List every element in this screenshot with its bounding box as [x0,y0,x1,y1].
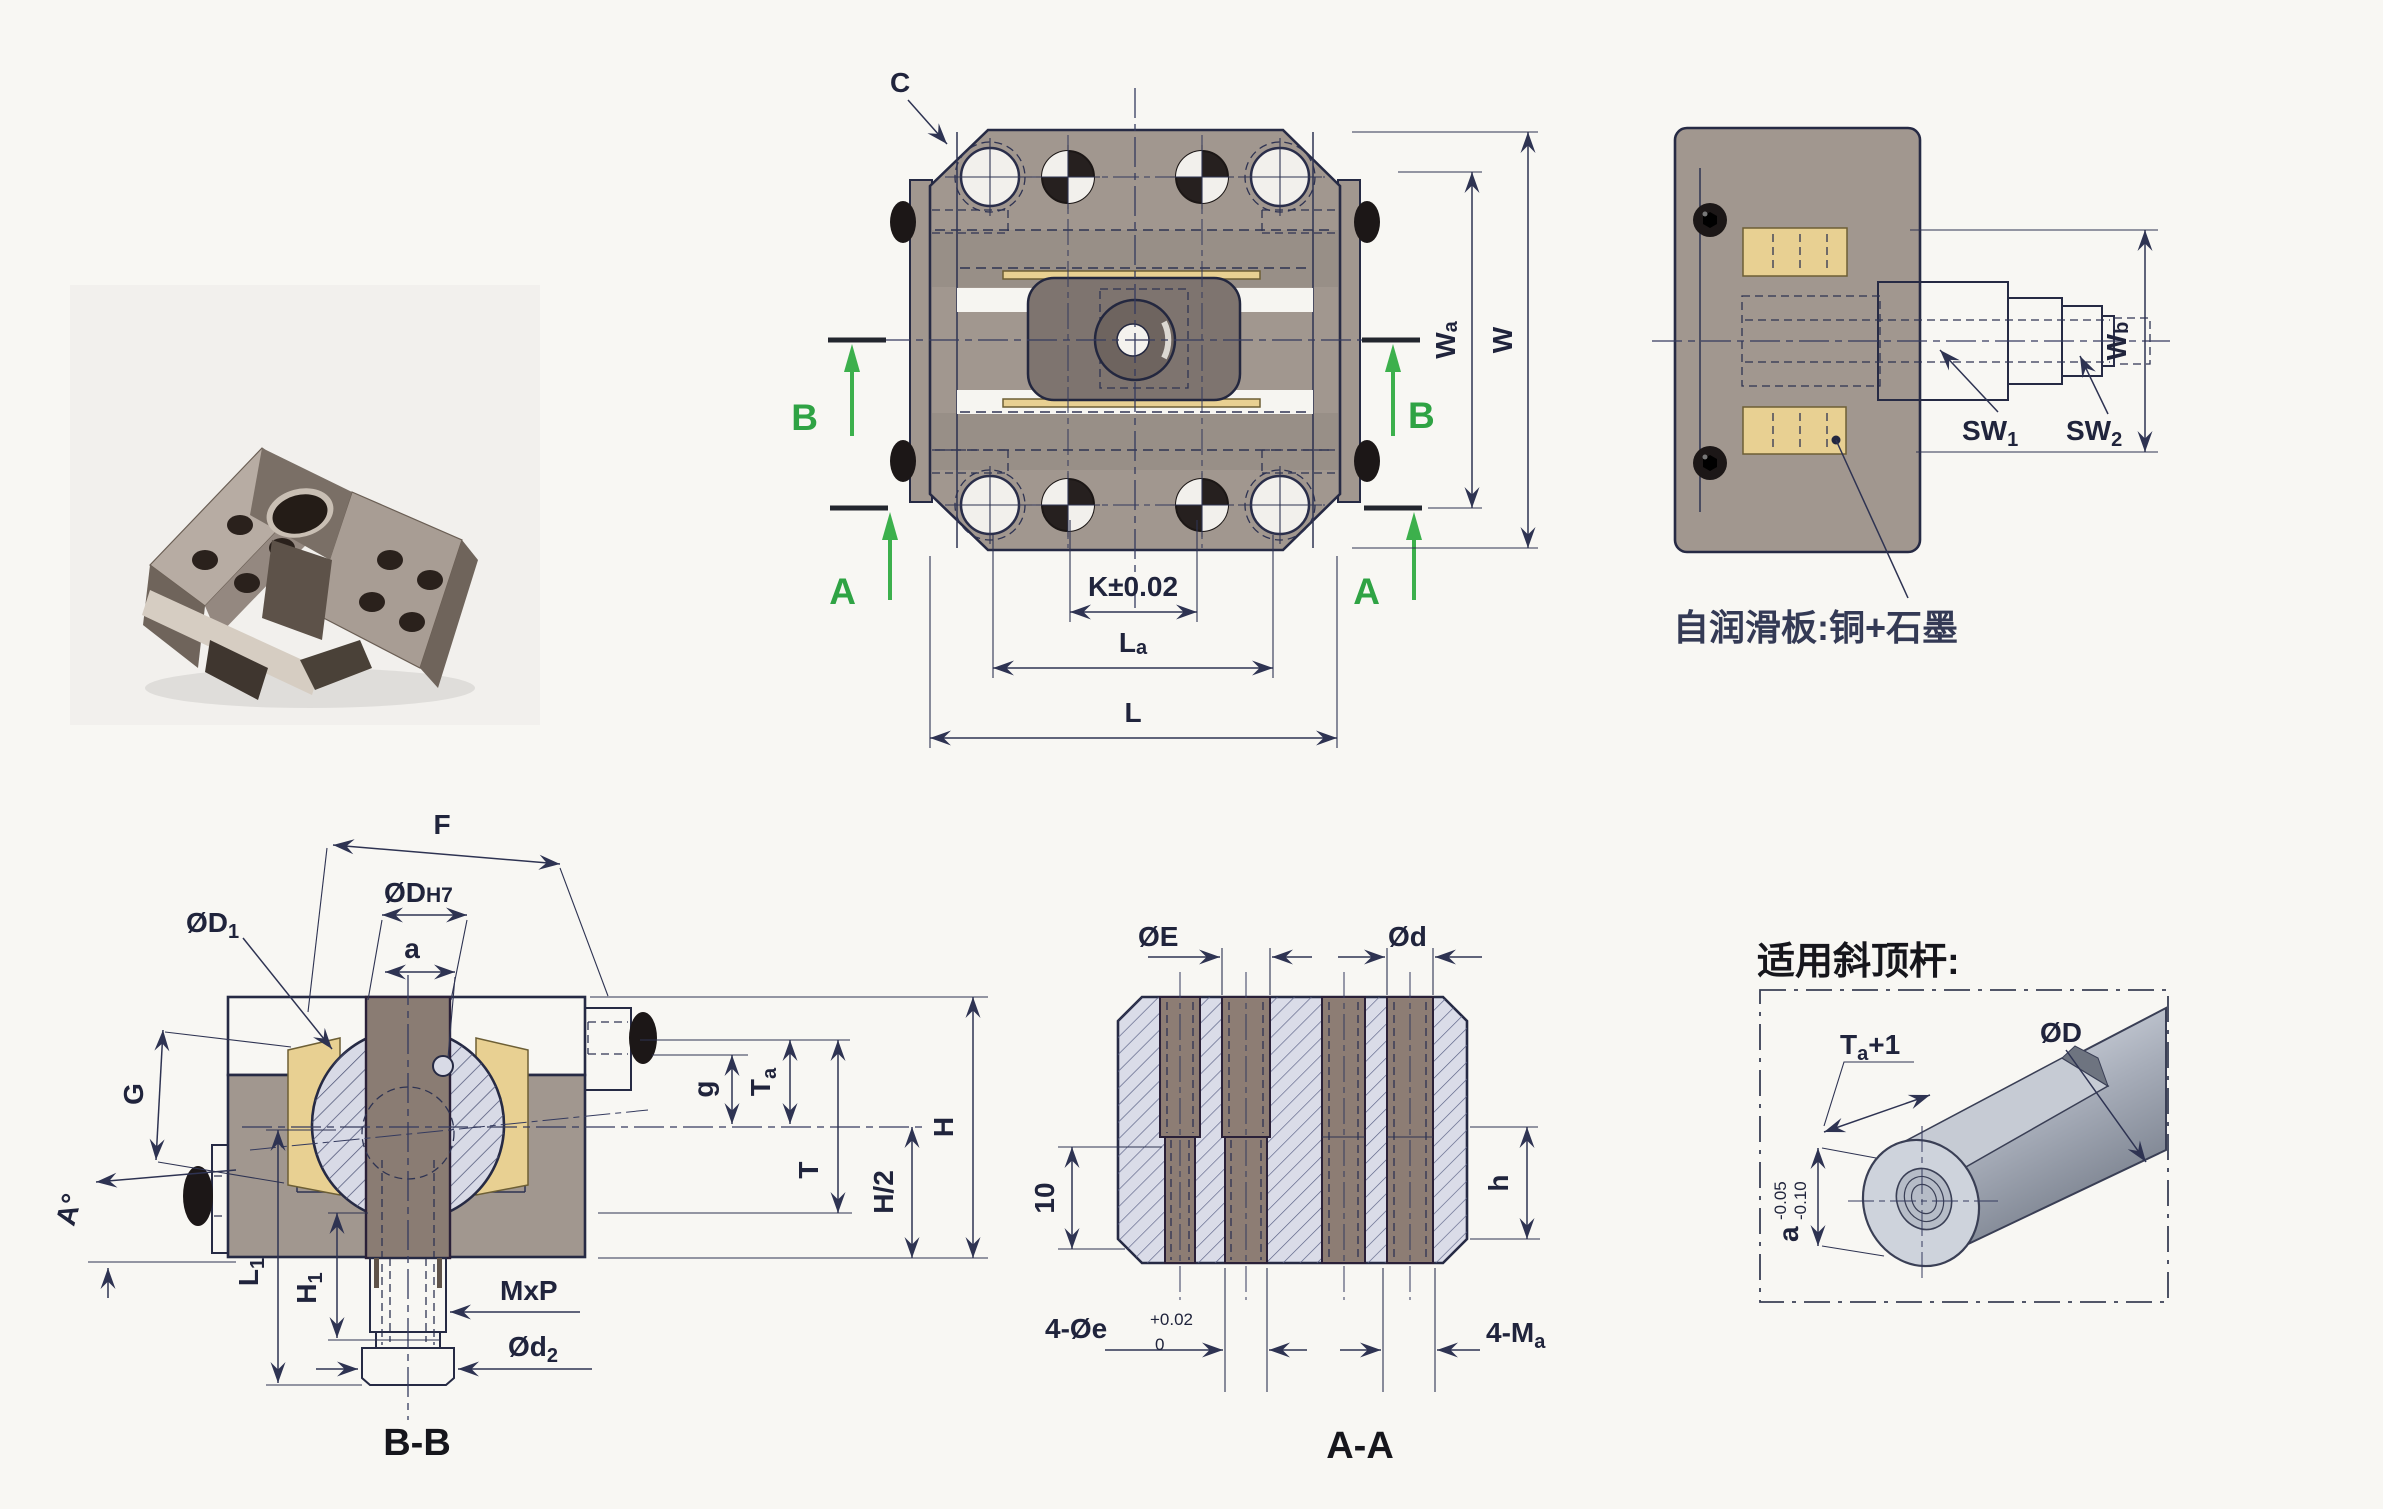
dim-ta: Ta [745,1040,790,1124]
dim-d1: ØD1 [186,907,332,1049]
dim-4e-tol-lower: 0 [1155,1335,1164,1354]
sw2-leader [2080,356,2108,414]
dim-la: La [993,535,1273,678]
housing-body [1675,128,1920,552]
section-a-label: A [829,571,856,612]
svg-text:-0.05: -0.05 [1771,1181,1790,1220]
dim-k-label: K±0.02 [1088,571,1178,602]
rod-view-title: 适用斜顶杆: [1757,941,1960,983]
dim-l-label: L [1124,697,1141,728]
dim-d-small-label: Ød [1388,921,1427,952]
svg-text:-0.10: -0.10 [1791,1181,1810,1220]
sw1-leader [1940,350,1998,412]
dim-ta1: Ta+1 [1824,1029,1930,1132]
drawing-sheet: C B B A A K±0.02 La L Wa [0,0,2383,1509]
dim-h1-label: H1 [291,1272,327,1303]
drawing-canvas: C B B A A K±0.02 La L Wa [0,0,2383,1509]
dim-e-label: ØE [1138,921,1178,952]
section-arrow-b-right: B [1362,340,1435,436]
dim-h-small-label: h [1483,1174,1514,1191]
dim-d2-label: Ød2 [508,1331,558,1367]
side-screw [890,440,916,482]
top-view: C B B A A K±0.02 La L Wa [791,67,1538,748]
dim-wa-label: Wa [1430,320,1462,358]
dim-mxp: MxP [450,1275,580,1312]
rod-view: 适用斜顶杆: Ta+1 ØD a -0.05 -0.10 [1757,941,2168,1302]
dim-d1-label: ØD1 [186,907,239,943]
svg-text:a: a [1773,1226,1804,1242]
dim-h-half: H/2 [868,1127,912,1258]
section-view-bb: F ØDH7 a ØD1 G A° L1 H1 MxP [50,809,988,1464]
wear-plate [1743,407,1846,454]
sw2-label: SW2 [2066,415,2122,451]
dim-rod-d-label: ØD [2040,1017,2082,1048]
wear-plate [1743,228,1847,276]
dim-4e: 4-Øe +0.02 0 [1045,1268,1307,1392]
detail-c-label: C [890,67,910,98]
detail-c-leader [908,100,947,144]
dim-ta-label: Ta [745,1067,781,1096]
self-lube-note: 自润滑板:铜+石墨 [1673,607,1958,648]
dim-w-label: W [1487,326,1518,353]
dim-10-label: 10 [1029,1182,1060,1213]
dim-h-label: H [928,1117,959,1137]
section-b-label: B [791,397,818,438]
dim-h-half-label: H/2 [868,1170,899,1214]
side-screw [1354,440,1380,482]
section-a-label: A [1353,571,1380,612]
dim-rod-a-label: a -0.05 -0.10 [1771,1181,1810,1242]
side-screw [1354,201,1380,243]
dim-a-label: a [404,933,420,964]
dim-h: H [928,997,973,1258]
dim-l1-label: L1 [233,1258,269,1286]
section-arrow-b-left: B [791,340,886,438]
dim-4e-label: 4-Øe [1045,1313,1107,1344]
section-view-aa: ØE Ød 10 h 4-Øe +0.02 0 4-Ma A-A [1029,921,1546,1467]
side-screw [890,201,916,243]
dim-t-label: T [793,1161,824,1178]
dim-4ma-label: 4-Ma [1486,1317,1546,1353]
dim-g-lower-label: g [688,1080,719,1097]
dim-wb-label: Wb [2101,322,2133,361]
section-arrow-a-right: A [1353,508,1422,612]
detent-pin [433,1056,453,1076]
section-bb-title: B-B [383,1422,451,1464]
right-screw-tab [585,1008,631,1090]
dim-f-label: F [433,809,450,840]
dim-e: ØE [1138,921,1312,995]
section-arrow-a-left: A [829,508,898,612]
sw1-label: SW1 [1962,415,2018,451]
section-b-label: B [1408,395,1435,436]
dim-4e-tol-upper: +0.02 [1150,1310,1193,1329]
product-photo [70,285,540,725]
dim-g-lower: g [688,1055,732,1124]
section-aa-title: A-A [1326,1425,1394,1467]
dim-g-label: G [118,1083,149,1105]
dim-mxp-label: MxP [500,1275,558,1306]
dim-4ma: 4-Ma [1340,1268,1546,1392]
dim-la-label: La [1119,627,1148,659]
dim-f: F [308,809,608,1012]
side-screw [629,1012,657,1064]
dim-h-small: h [1470,1127,1540,1239]
side-screw [183,1166,213,1226]
dim-angle-label: A° [50,1190,88,1228]
dim-dh7-label: ØDH7 [384,877,453,908]
dim-ta1-label: Ta+1 [1840,1029,1900,1065]
side-view: Wb SW1 SW2 自润滑板:铜+石墨 [1652,128,2170,648]
